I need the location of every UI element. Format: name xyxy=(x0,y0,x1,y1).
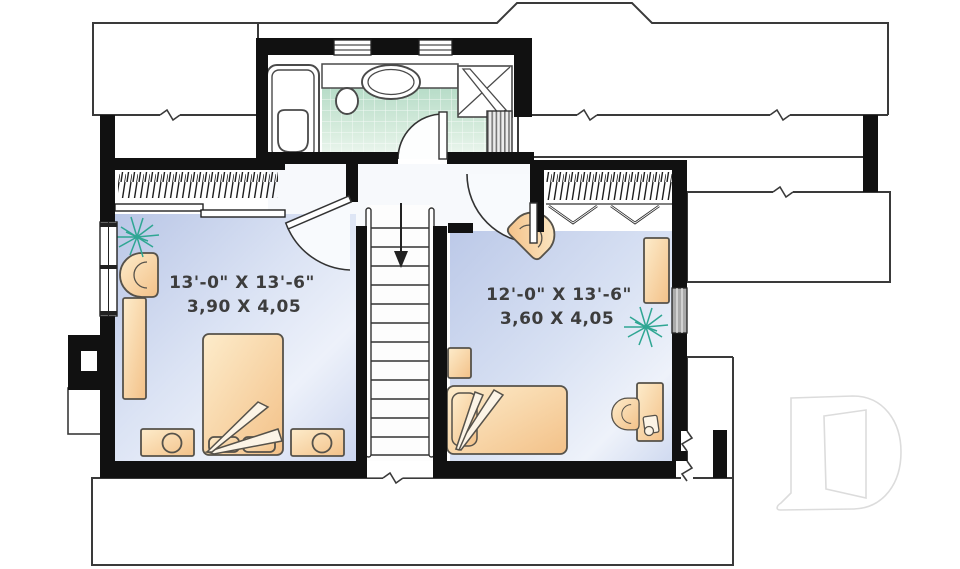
sink-icon xyxy=(362,65,420,99)
bathtub-icon xyxy=(267,65,319,162)
bedroom-left-dimension-metric: 3,90 X 4,05 xyxy=(187,297,301,317)
corner-shower-icon xyxy=(458,66,512,117)
drummond-d-logo-icon xyxy=(777,396,901,510)
desk-chair xyxy=(612,398,639,430)
bedroom-right-door-leaf xyxy=(530,203,537,243)
wardrobe xyxy=(644,238,669,303)
toilet-icon xyxy=(336,88,358,114)
closet-right-hatch xyxy=(546,172,672,204)
bifold-door-icon xyxy=(549,206,659,223)
dresser xyxy=(123,298,146,399)
linen-closet xyxy=(487,111,512,158)
window-icon xyxy=(334,40,371,55)
bedroom-left-dimension-imperial: 13'-0" X 13'-6" xyxy=(169,273,315,293)
bedroom-right-dimension-metric: 3,60 X 4,05 xyxy=(500,309,614,329)
window-icon xyxy=(672,288,687,333)
closet-left-hatch xyxy=(115,172,285,217)
bedroom-right-dimension-imperial: 12'-0" X 13'-6" xyxy=(486,285,632,305)
desk-lamp-icon xyxy=(645,427,654,436)
window-icon xyxy=(100,222,117,316)
floor-plan-canvas: 13'-0" X 13'-6" 3,90 X 4,05 12'-0" X 13'… xyxy=(0,0,960,569)
bathroom-door-leaf xyxy=(439,112,447,159)
staircase xyxy=(366,203,434,461)
nightstand xyxy=(448,348,471,378)
window-icon xyxy=(419,40,452,55)
chimney-base xyxy=(68,388,103,434)
chimney-flue xyxy=(81,351,97,371)
armchair xyxy=(120,253,158,297)
